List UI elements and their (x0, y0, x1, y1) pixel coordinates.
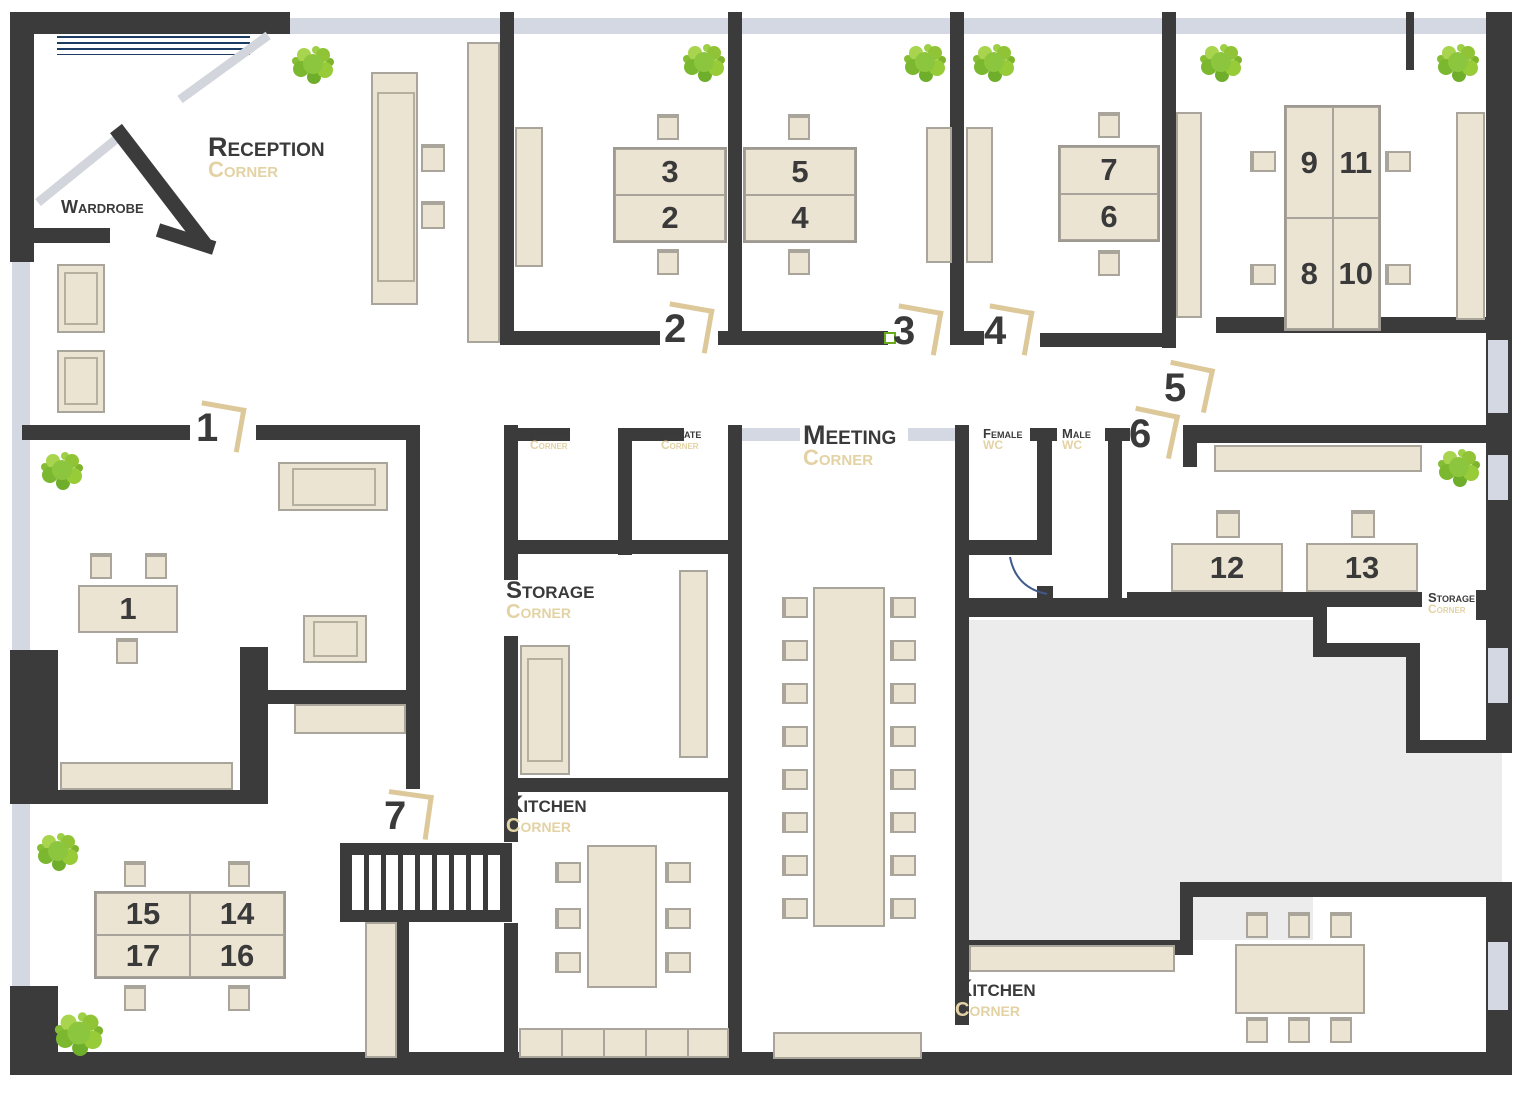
bush-icon (1448, 52, 1468, 72)
armchair-cushion (64, 272, 98, 325)
wall (1180, 882, 1502, 897)
desk-group: 9 11 8 10 (1284, 105, 1381, 331)
chair (890, 597, 916, 618)
chair (1330, 912, 1352, 938)
wall (1037, 428, 1052, 555)
wc-door-swing (1007, 556, 1049, 598)
wall (1476, 590, 1488, 620)
chair (116, 638, 138, 664)
wall (955, 1056, 969, 1075)
wall (955, 540, 1052, 555)
cabinet (926, 127, 952, 263)
window-strip (1488, 648, 1508, 703)
chair (782, 855, 808, 876)
chair (1098, 250, 1120, 276)
room-label-wardrobe: Wardrobe (61, 198, 144, 217)
room-label-private-2: Private Corner (661, 427, 701, 451)
cabinet (1176, 112, 1202, 318)
wall (1127, 592, 1422, 607)
desk: 15 (96, 893, 190, 935)
chair (124, 861, 146, 887)
desk: 10 (1333, 218, 1380, 329)
cabinet (515, 127, 543, 267)
chair (788, 249, 810, 275)
door-7: 7 (384, 790, 432, 838)
sideboard (1214, 445, 1422, 472)
wall (1183, 443, 1197, 467)
window-strip (12, 262, 30, 650)
wall (718, 331, 888, 345)
chair (782, 683, 808, 704)
wall (504, 636, 518, 792)
wall (22, 425, 190, 440)
chair (657, 114, 679, 140)
cabinet (679, 570, 708, 758)
door-1: 1 (196, 402, 244, 450)
wall (504, 778, 740, 792)
room-label-kitchen-right: Kitchen Corner (955, 977, 1036, 1021)
room-label-storage-left: Storage Corner (506, 579, 594, 623)
door-5: 5 (1164, 362, 1212, 410)
chair (1216, 510, 1240, 538)
bush-icon (1211, 52, 1231, 72)
cabinet (966, 127, 993, 263)
chair (890, 855, 916, 876)
courtyard-floor (1407, 753, 1502, 882)
reception-desk-top (377, 92, 415, 282)
desk: 8 (1286, 218, 1333, 329)
chair (890, 683, 916, 704)
staircase-treads (352, 855, 500, 910)
wall (504, 923, 518, 1055)
wall (500, 12, 514, 345)
chair (555, 908, 581, 929)
wall (30, 228, 110, 243)
chair (890, 898, 916, 919)
desk: 5 (745, 149, 855, 195)
meeting-table (813, 587, 885, 927)
chair (782, 726, 808, 747)
wall (256, 425, 420, 440)
glass-partition (908, 428, 955, 441)
chair (657, 249, 679, 275)
bush-icon (694, 52, 714, 72)
chair (665, 908, 691, 929)
cabinet (467, 42, 500, 343)
wall (504, 540, 742, 554)
chair (1288, 1017, 1310, 1043)
sideboard (60, 762, 233, 790)
chair (782, 769, 808, 790)
wall (1108, 428, 1122, 603)
door-3: 3 (893, 305, 941, 353)
chair (90, 553, 112, 579)
chair (421, 144, 445, 172)
desk: 4 (745, 195, 855, 241)
chair (890, 769, 916, 790)
bush-icon (915, 52, 935, 72)
floor-plan: 3 2 5 4 7 6 9 11 8 10 1 15 14 1 (0, 0, 1524, 1098)
chair (665, 952, 691, 973)
chair (1246, 1017, 1268, 1043)
desk: 3 (615, 149, 725, 195)
credenza (773, 1032, 922, 1059)
chair (890, 640, 916, 661)
wall (22, 790, 268, 804)
bush-icon (303, 54, 323, 74)
wall (397, 922, 409, 1058)
desk: 11 (1333, 107, 1380, 218)
wall (268, 690, 420, 704)
wall (950, 12, 964, 345)
room-label-private-1: Private Corner (530, 427, 570, 451)
window-strip (1488, 942, 1508, 1010)
wall (955, 425, 969, 1025)
desk-group: 7 6 (1058, 145, 1160, 242)
chair (1250, 264, 1276, 285)
chair (782, 597, 808, 618)
wall (1162, 12, 1176, 348)
desk: 6 (1060, 194, 1158, 241)
chair (782, 640, 808, 661)
door-2: 2 (664, 303, 712, 351)
kitchen-table (587, 845, 657, 988)
desk: 9 (1286, 107, 1333, 218)
desk: 2 (615, 195, 725, 241)
desk: 17 (96, 935, 190, 977)
couch-cushion (527, 658, 563, 762)
chair (1385, 151, 1411, 172)
chair (1288, 912, 1310, 938)
chair (228, 861, 250, 887)
window-strip (290, 18, 1486, 34)
desk-number: 13 (1306, 543, 1418, 592)
kitchen-counter (969, 945, 1175, 972)
room-label-storage-right: Storage Corner (1428, 591, 1475, 615)
kitchen-table (1235, 944, 1365, 1014)
desk: 14 (190, 893, 284, 935)
room-label-male-wc: Male WC (1062, 427, 1091, 451)
desk: 7 (1060, 147, 1158, 194)
wall (500, 331, 660, 345)
room-label-female-wc: Female WC (983, 427, 1022, 451)
desk-number: 1 (78, 585, 178, 633)
armchair-cushion (313, 621, 358, 657)
window-strip (1488, 340, 1508, 413)
door-4: 4 (984, 305, 1032, 353)
wall (1406, 12, 1414, 70)
chair (782, 898, 808, 919)
room-label-kitchen-left: Kitchen Corner (506, 793, 587, 837)
door-6: 6 (1129, 408, 1177, 456)
desk-group: 5 4 (743, 147, 857, 243)
window-strip (1488, 455, 1508, 500)
chair (228, 985, 250, 1011)
desk-number: 12 (1171, 543, 1283, 592)
wall (1406, 740, 1502, 753)
wall (10, 650, 58, 804)
wall (240, 647, 268, 804)
cabinet (1456, 112, 1485, 320)
wall (10, 1052, 1502, 1075)
wall (950, 331, 984, 345)
wall (1406, 643, 1420, 753)
kitchen-counter (519, 1028, 729, 1058)
wall (1040, 333, 1176, 347)
chair (1246, 912, 1268, 938)
chair (1098, 112, 1120, 138)
bush-icon (1449, 457, 1469, 477)
chair (1385, 264, 1411, 285)
sofa-cushion (292, 468, 376, 506)
chair (1330, 1017, 1352, 1043)
wall (10, 12, 290, 34)
desk: 16 (190, 935, 284, 977)
courtyard-floor (1313, 657, 1407, 882)
chair (665, 862, 691, 883)
bush-icon (48, 841, 68, 861)
wall (618, 428, 632, 555)
chair (890, 726, 916, 747)
chair (788, 114, 810, 140)
chair (782, 812, 808, 833)
chair (124, 985, 146, 1011)
wall (406, 425, 420, 789)
reception-window-blinds (57, 36, 250, 55)
wall (1313, 643, 1420, 657)
room-label-reception: Reception Corner (208, 133, 325, 182)
chair (890, 812, 916, 833)
bush-icon (52, 460, 72, 480)
room-label-meeting: Meeting Corner (803, 421, 896, 470)
chair (1250, 151, 1276, 172)
chair (555, 952, 581, 973)
door-swing-line (35, 131, 125, 206)
armchair-cushion (64, 357, 98, 405)
sideboard (294, 704, 406, 734)
chair (421, 201, 445, 229)
bush-icon (984, 52, 1004, 72)
wall (504, 540, 518, 580)
wall (728, 12, 742, 345)
desk-group: 3 2 (613, 147, 727, 243)
wall (1183, 425, 1486, 443)
desk-group: 15 14 17 16 (94, 891, 286, 979)
cabinet (365, 922, 397, 1058)
glass-partition (742, 428, 800, 441)
chair (145, 553, 167, 579)
chair (1351, 510, 1375, 538)
window-strip (12, 804, 30, 986)
wall (10, 12, 34, 262)
wall (728, 425, 742, 1055)
bush-icon (68, 1022, 91, 1045)
chair (555, 862, 581, 883)
wall (504, 425, 518, 555)
